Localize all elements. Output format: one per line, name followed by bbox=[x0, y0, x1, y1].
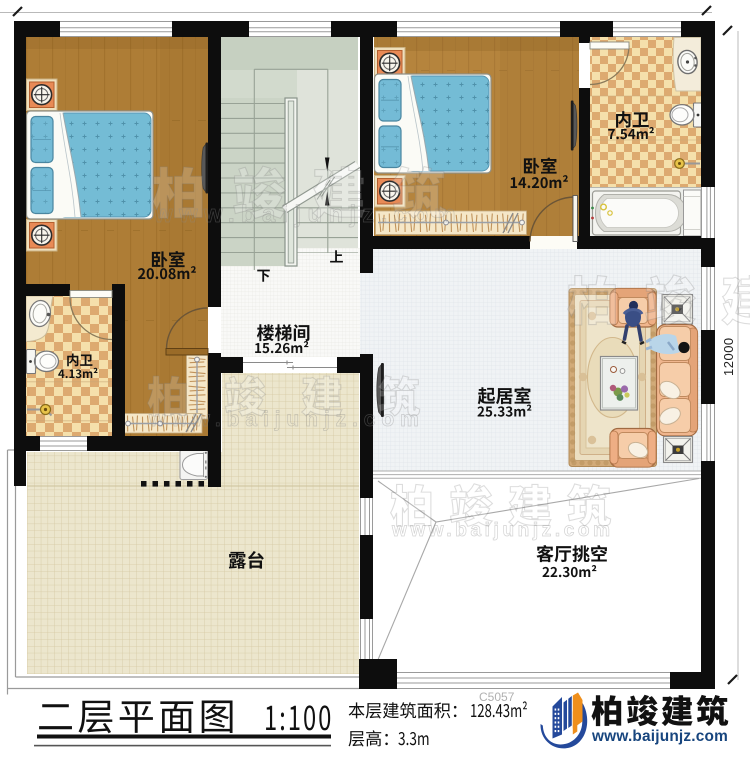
svg-text:www.baijunjz.com: www.baijunjz.com bbox=[153, 201, 462, 228]
svg-text:C5057: C5057 bbox=[479, 690, 515, 704]
svg-text:12000: 12000 bbox=[721, 337, 736, 376]
svg-text:www.baijunjz.com: www.baijunjz.com bbox=[391, 520, 614, 541]
svg-text:www.baijunjz.com: www.baijunjz.com bbox=[148, 408, 425, 431]
svg-text:www.baijunjz.com: www.baijunjz.com bbox=[591, 728, 728, 745]
